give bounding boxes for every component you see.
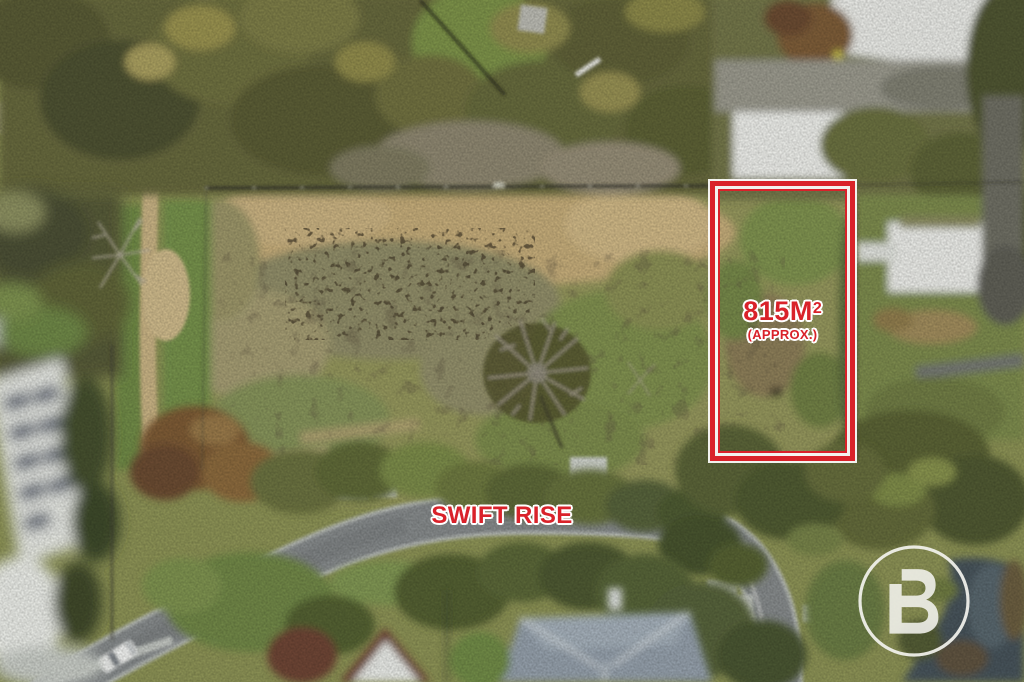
- lot-area-label: 815M2: [710, 297, 855, 325]
- lot-area-value: 815M: [743, 296, 813, 326]
- lot-area-approx-label: (APPROX.): [710, 328, 855, 342]
- agency-logo: [855, 542, 973, 660]
- lot-area-superscript: 2: [813, 300, 822, 317]
- logo-b-mark-icon: [889, 569, 938, 634]
- lot-area-label-group: 815M2 (APPROX.): [710, 297, 855, 342]
- street-name-label: SWIFT RISE: [382, 503, 622, 528]
- aerial-photo-listing: 815M2 (APPROX.) SWIFT RISE: [0, 0, 1024, 682]
